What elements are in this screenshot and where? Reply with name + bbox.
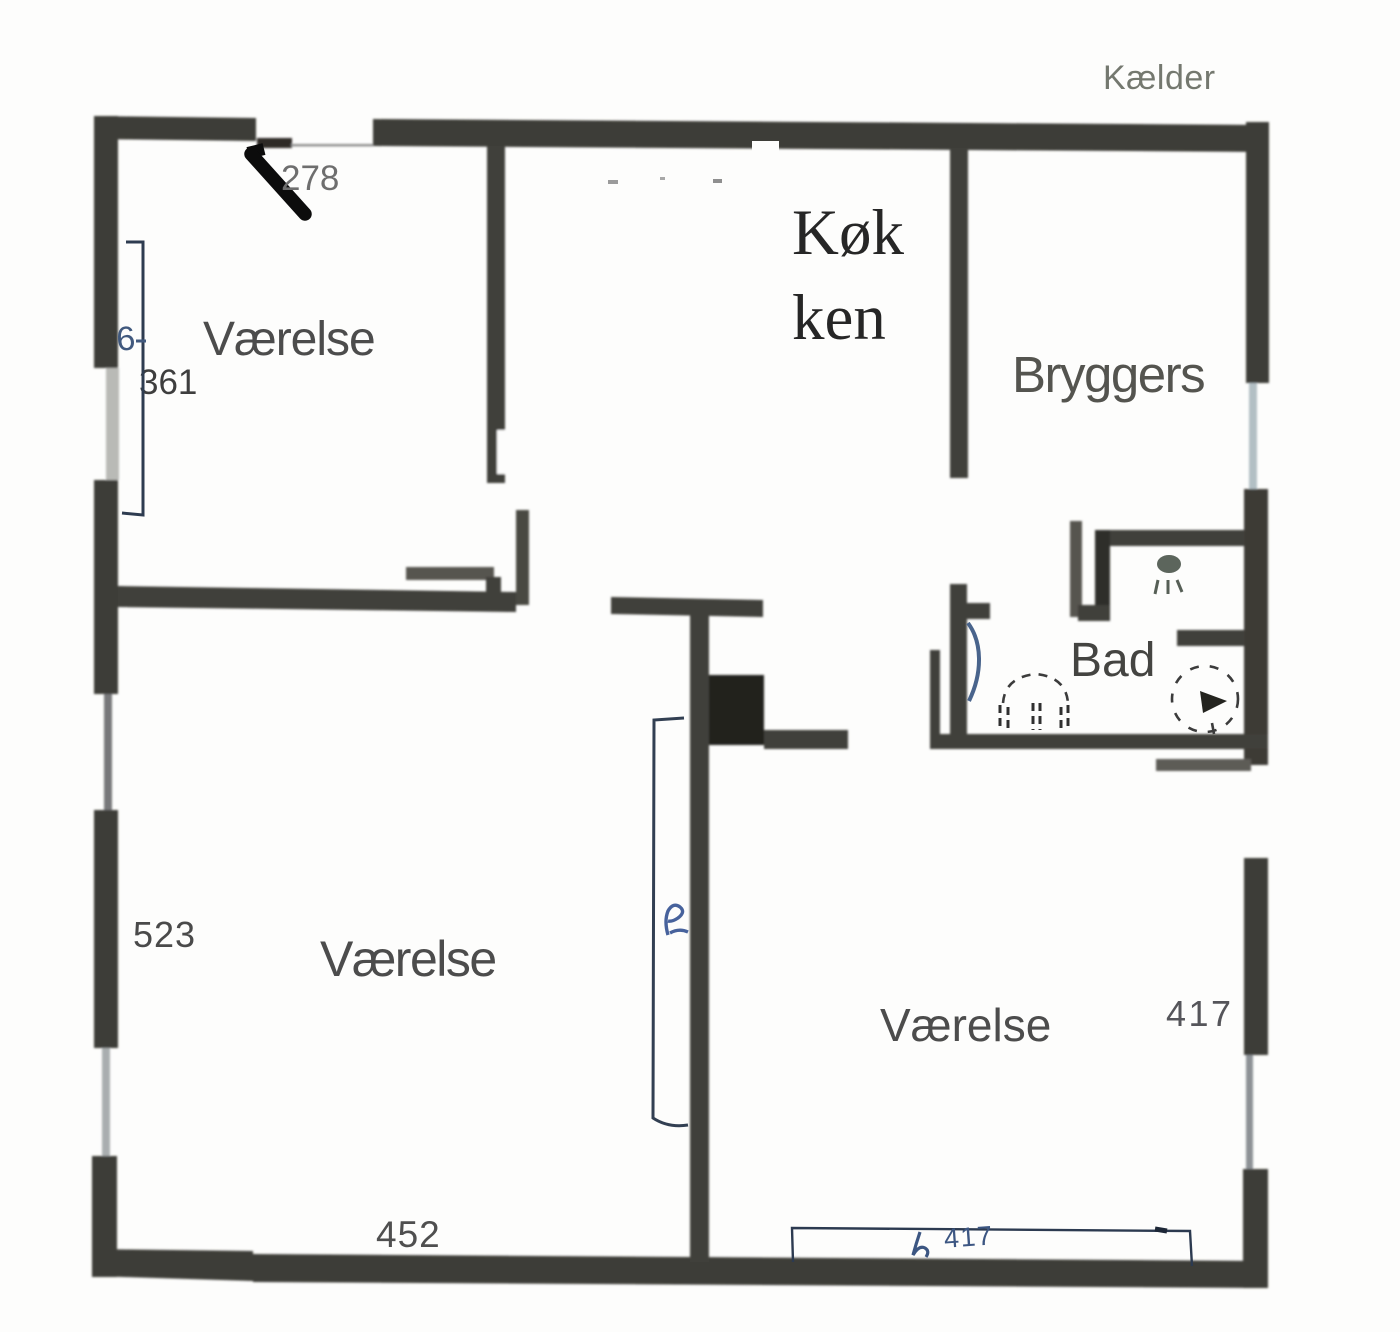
- svg-text:Værelse: Værelse: [320, 931, 496, 987]
- svg-text:Bad: Bad: [1070, 634, 1155, 687]
- svg-text:Kælder: Kælder: [1103, 59, 1216, 97]
- svg-text:Bryggers: Bryggers: [1012, 346, 1204, 403]
- svg-text:Værelse: Værelse: [203, 313, 375, 366]
- svg-text:523: 523: [133, 914, 196, 955]
- svg-text:6: 6: [115, 320, 137, 359]
- svg-text:Værelse: Værelse: [880, 999, 1051, 1051]
- svg-text:452: 452: [376, 1214, 441, 1255]
- svg-text:361: 361: [139, 363, 197, 402]
- svg-text:417: 417: [943, 1220, 995, 1253]
- svg-text:ken: ken: [792, 282, 886, 354]
- svg-text:Køk: Køk: [792, 197, 904, 269]
- svg-text:278: 278: [281, 159, 339, 198]
- svg-text:417: 417: [1166, 993, 1234, 1034]
